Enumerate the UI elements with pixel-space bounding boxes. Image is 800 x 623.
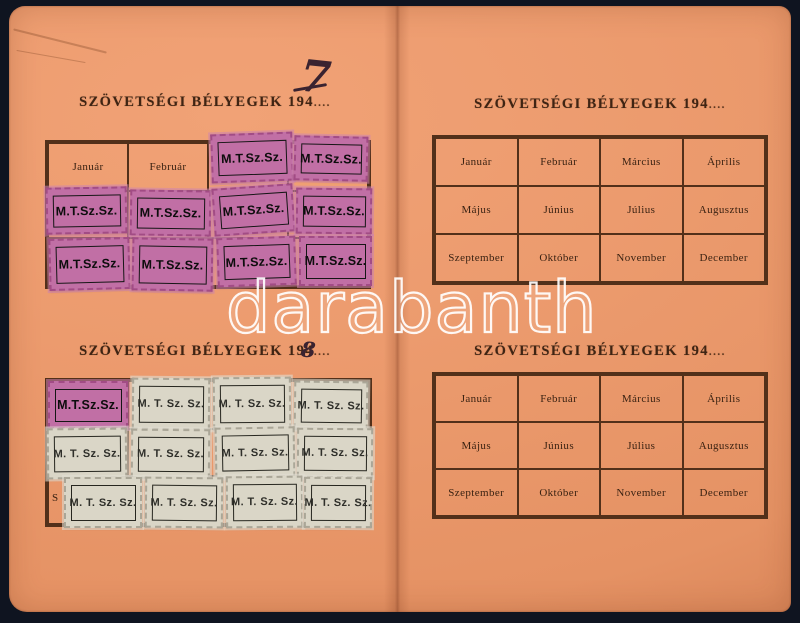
stamp-label: M.T.Sz.Sz. — [52, 194, 121, 227]
month-cell: Április — [683, 375, 766, 422]
membership-stamp-purple: M.T.Sz.Sz. — [296, 188, 372, 235]
month-cell: Március — [600, 375, 683, 422]
membership-stamp-white: M. T. Sz. Sz. — [294, 380, 369, 430]
membership-stamp-white: M. T. Sz. Sz. — [64, 477, 142, 528]
month-cell: Augusztus — [683, 422, 766, 469]
month-cell: Január — [48, 143, 128, 191]
membership-stamp-purple: M.T.Sz.Sz. — [46, 186, 128, 234]
month-cell: Június — [518, 422, 601, 469]
stamp-label: M. T. Sz. Sz. — [310, 484, 365, 520]
title-dots: .... — [709, 99, 726, 111]
membership-stamp-white: M. T. Sz. Sz. — [213, 377, 291, 431]
membership-stamp-white: M. T. Sz. Sz. — [131, 429, 210, 480]
section-title-text: SZÖVETSÉGI BÉLYEGEK 194 — [474, 96, 709, 112]
stamp-label: M. T. Sz. Sz. — [303, 435, 366, 470]
stamp-label: M.T.Sz.Sz. — [55, 245, 124, 284]
month-cell: Szeptember — [435, 469, 518, 516]
section-title-text: SZÖVETSÉGI BÉLYEGEK 194 — [79, 94, 314, 110]
membership-stamp-purple: M.T.Sz.Sz. — [211, 183, 295, 237]
membership-stamp-purple: M.T.Sz.Sz. — [48, 381, 128, 429]
month-cell: December — [683, 469, 766, 516]
stamp-label: M. T. Sz. Sz. — [221, 434, 289, 471]
month-cell: Január — [435, 375, 518, 422]
stamp-label: M. T. Sz. Sz. — [219, 384, 284, 423]
membership-stamp-white: M. T. Sz. Sz. — [145, 477, 224, 529]
scanned-stamp-booklet: SZÖVETSÉGI BÉLYEGEK 194.... 7 Január Feb… — [0, 0, 800, 623]
stamp-label: M. T. Sz. Sz. — [151, 484, 216, 521]
stamp-label: M. T. Sz. Sz. — [232, 483, 296, 521]
month-cell: Február — [518, 138, 601, 186]
month-cell: November — [600, 469, 683, 516]
month-cell: December — [683, 234, 766, 282]
membership-stamp-white: M. T. Sz. Sz. — [226, 476, 303, 529]
month-cell: Március — [600, 138, 683, 186]
stamp-label: M.T.Sz.Sz. — [217, 139, 287, 175]
stamp-label: M.T.Sz.Sz. — [218, 191, 288, 229]
month-cell: Január — [435, 138, 518, 186]
membership-stamp-purple: M.T.Sz.Sz. — [130, 189, 212, 236]
membership-stamp-white: M. T. Sz. Sz. — [47, 428, 128, 480]
month-cell: Augusztus — [683, 186, 766, 234]
membership-stamp-white: M. T. Sz. Sz. — [297, 428, 373, 479]
membership-stamp-purple: M.T.Sz.Sz. — [210, 132, 294, 184]
month-cell: Október — [518, 469, 601, 516]
membership-stamp-purple: M.T.Sz.Sz. — [294, 135, 369, 182]
auction-house-watermark: darabanth — [226, 267, 598, 349]
month-cell: Május — [435, 422, 518, 469]
month-cell: November — [600, 234, 683, 282]
stamp-label: M.T.Sz.Sz. — [55, 389, 122, 422]
handwritten-year-7: 7 — [297, 51, 333, 105]
stamp-label: M. T. Sz. Sz. — [300, 388, 361, 423]
membership-stamp-white: M. T. Sz. Sz. — [132, 378, 210, 431]
stamp-label: M.T.Sz.Sz. — [300, 143, 362, 174]
month-cell: Június — [518, 186, 601, 234]
month-cell: Július — [600, 422, 683, 469]
month-cell: Április — [683, 138, 766, 186]
stamp-label: M.T.Sz.Sz. — [302, 195, 365, 227]
month-grid-blank-top: Január Február Március Április Május Jún… — [432, 135, 768, 285]
month-grid-blank-bottom: Január Február Március Április Május Jún… — [432, 372, 768, 519]
stamp-label: M.T.Sz.Sz. — [138, 245, 207, 284]
month-cell: Május — [435, 186, 518, 234]
month-cell: Február — [518, 375, 601, 422]
title-dots: .... — [709, 346, 726, 358]
month-cell: Július — [600, 186, 683, 234]
stamp-label: M. T. Sz. Sz. — [53, 435, 120, 472]
membership-stamp-purple: M.T.Sz.Sz. — [48, 237, 130, 291]
membership-stamp-purple: M.T.Sz.Sz. — [132, 237, 214, 291]
stamp-label: M. T. Sz. Sz. — [138, 385, 203, 423]
membership-stamp-white: M. T. Sz. Sz. — [215, 426, 296, 478]
stamp-label: M. T. Sz. Sz. — [71, 485, 136, 521]
stamp-label: M.T.Sz.Sz. — [136, 197, 204, 229]
stamp-label: M. T. Sz. Sz. — [137, 436, 203, 472]
month-cell: Február — [128, 143, 208, 191]
covered-month-peek-letter: S — [52, 492, 58, 504]
membership-stamp-white: M. T. Sz. Sz. — [304, 477, 372, 528]
section-title-blank-top: SZÖVETSÉGI BÉLYEGEK 194.... — [432, 96, 768, 113]
